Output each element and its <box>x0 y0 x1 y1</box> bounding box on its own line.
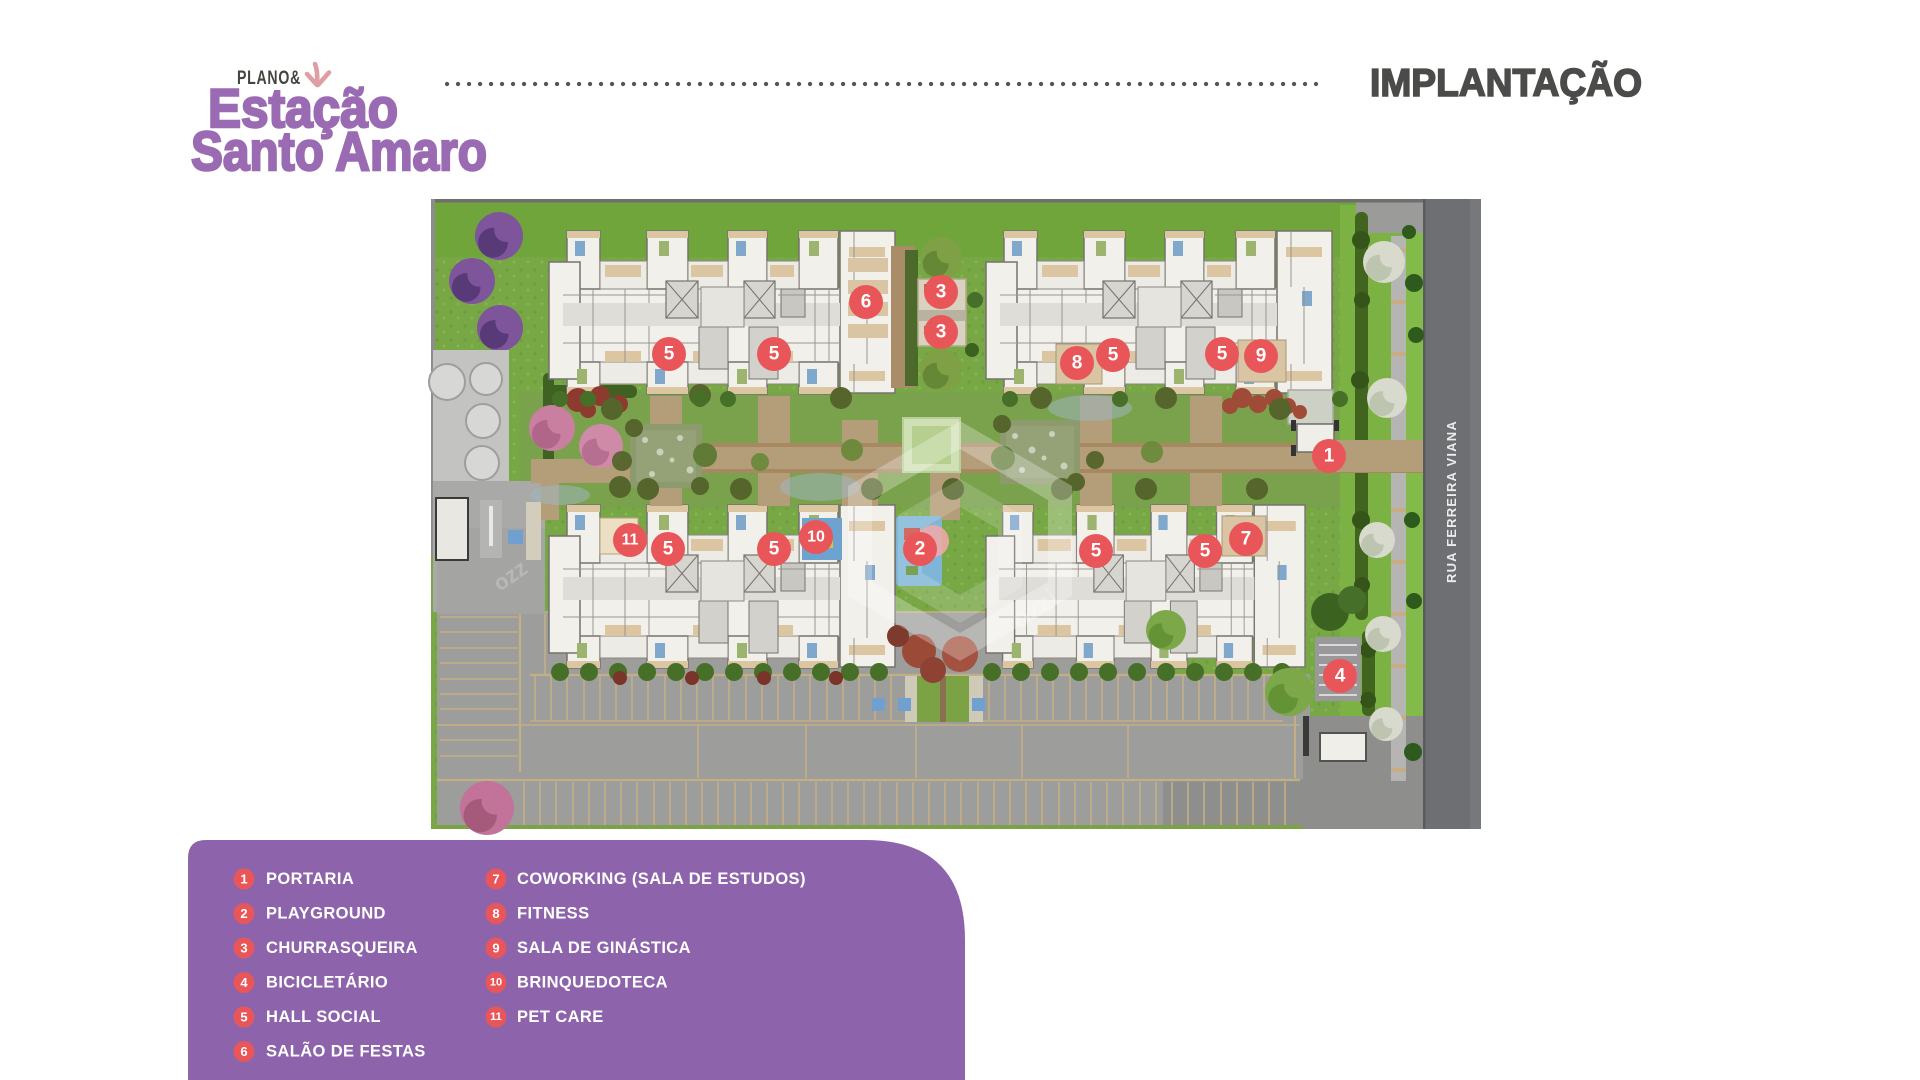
svg-text:CHURRASQUEIRA: CHURRASQUEIRA <box>266 939 418 957</box>
svg-text:5: 5 <box>769 539 780 560</box>
svg-text:BRINQUEDOTECA: BRINQUEDOTECA <box>517 974 668 992</box>
svg-text:HALL SOCIAL: HALL SOCIAL <box>266 1008 381 1026</box>
svg-text:5: 5 <box>663 539 674 560</box>
svg-text:5: 5 <box>1091 541 1102 562</box>
svg-text:BICICLETÁRIO: BICICLETÁRIO <box>266 973 388 992</box>
svg-text:SALÃO DE FESTAS: SALÃO DE FESTAS <box>266 1041 426 1061</box>
svg-text:PLAYGROUND: PLAYGROUND <box>266 905 386 923</box>
svg-text:8: 8 <box>492 906 499 921</box>
svg-text:5: 5 <box>769 344 780 365</box>
svg-text:4: 4 <box>240 975 248 990</box>
svg-text:1: 1 <box>240 872 247 887</box>
svg-text:2: 2 <box>915 539 926 560</box>
svg-text:3: 3 <box>240 941 247 956</box>
svg-text:4: 4 <box>1335 666 1346 687</box>
svg-text:6: 6 <box>861 292 872 313</box>
svg-text:3: 3 <box>936 282 947 303</box>
svg-text:7: 7 <box>492 872 499 887</box>
svg-text:1: 1 <box>1324 446 1335 467</box>
svg-text:5: 5 <box>1108 345 1119 366</box>
svg-text:9: 9 <box>1256 346 1267 367</box>
svg-text:5: 5 <box>1217 344 1228 365</box>
svg-text:6: 6 <box>240 1044 247 1059</box>
svg-text:11: 11 <box>490 1011 502 1023</box>
svg-text:7: 7 <box>1241 529 1252 550</box>
svg-text:11: 11 <box>622 532 639 549</box>
svg-text:3: 3 <box>936 322 947 343</box>
svg-text:2: 2 <box>240 906 247 921</box>
svg-text:FITNESS: FITNESS <box>517 905 589 923</box>
svg-text:5: 5 <box>664 344 675 365</box>
svg-text:9: 9 <box>492 941 499 956</box>
svg-text:SALA DE GINÁSTICA: SALA DE GINÁSTICA <box>517 938 691 957</box>
svg-text:10: 10 <box>490 977 502 989</box>
svg-text:PORTARIA: PORTARIA <box>266 870 354 888</box>
svg-text:RUA FERREIRA VIANA: RUA FERREIRA VIANA <box>1444 420 1459 583</box>
svg-text:PET CARE: PET CARE <box>517 1008 604 1026</box>
svg-text:5: 5 <box>240 1010 247 1025</box>
svg-text:5: 5 <box>1200 541 1211 562</box>
svg-text:IMPLANTAÇÃO: IMPLANTAÇÃO <box>1370 61 1642 105</box>
svg-text:8: 8 <box>1072 353 1083 374</box>
svg-text:COWORKING (SALA DE ESTUDOS): COWORKING (SALA DE ESTUDOS) <box>517 870 806 888</box>
svg-text:Santo Amaro: Santo Amaro <box>191 120 487 182</box>
svg-text:10: 10 <box>807 529 825 546</box>
